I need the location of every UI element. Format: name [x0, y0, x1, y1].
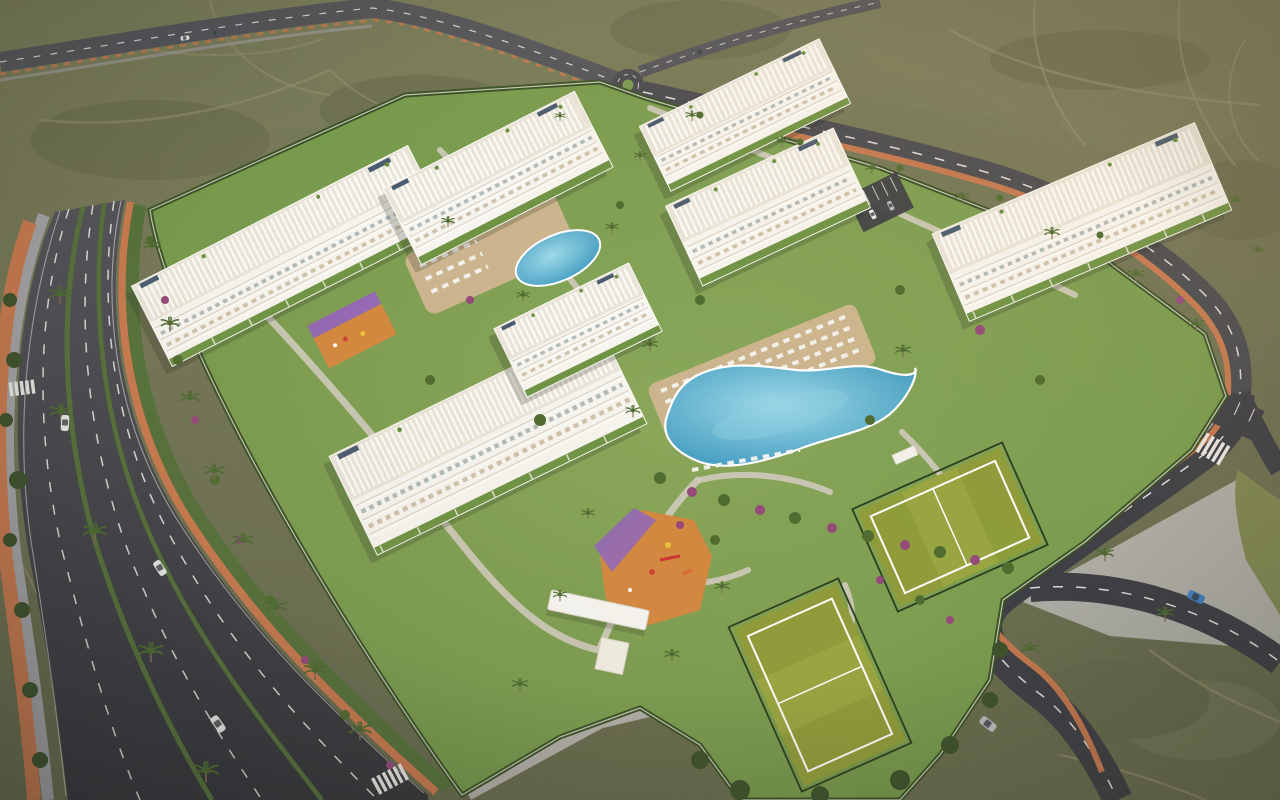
- vignette-overlay: [0, 0, 1280, 800]
- render-canvas: Aerial 3D architectural render of a reso…: [0, 0, 1280, 800]
- aerial-render: Aerial 3D architectural render of a reso…: [0, 0, 1280, 800]
